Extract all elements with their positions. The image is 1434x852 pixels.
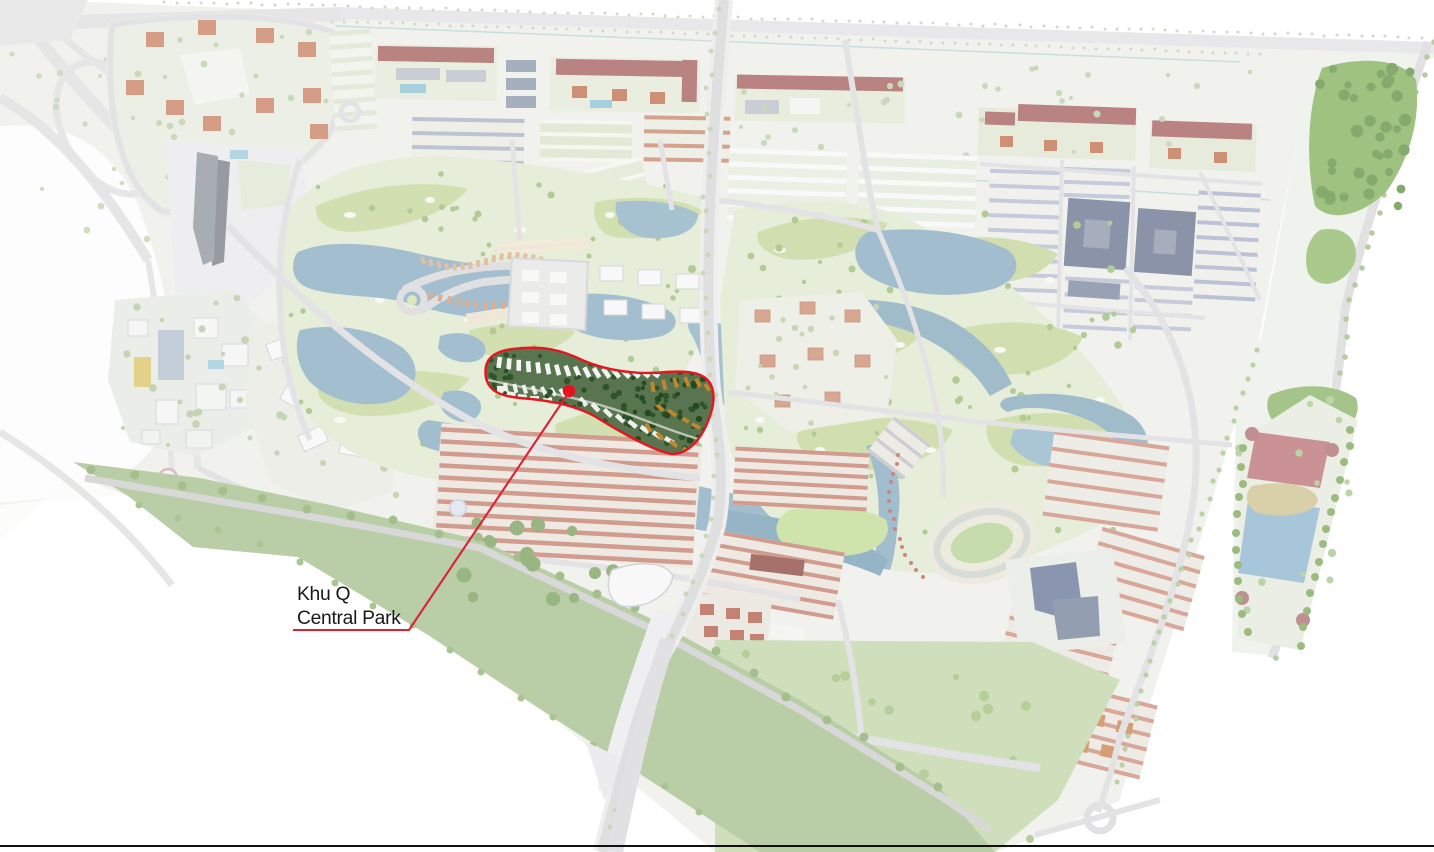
svg-text:Khu Q: Khu Q [297,584,350,605]
svg-text:Central Park: Central Park [297,608,401,629]
